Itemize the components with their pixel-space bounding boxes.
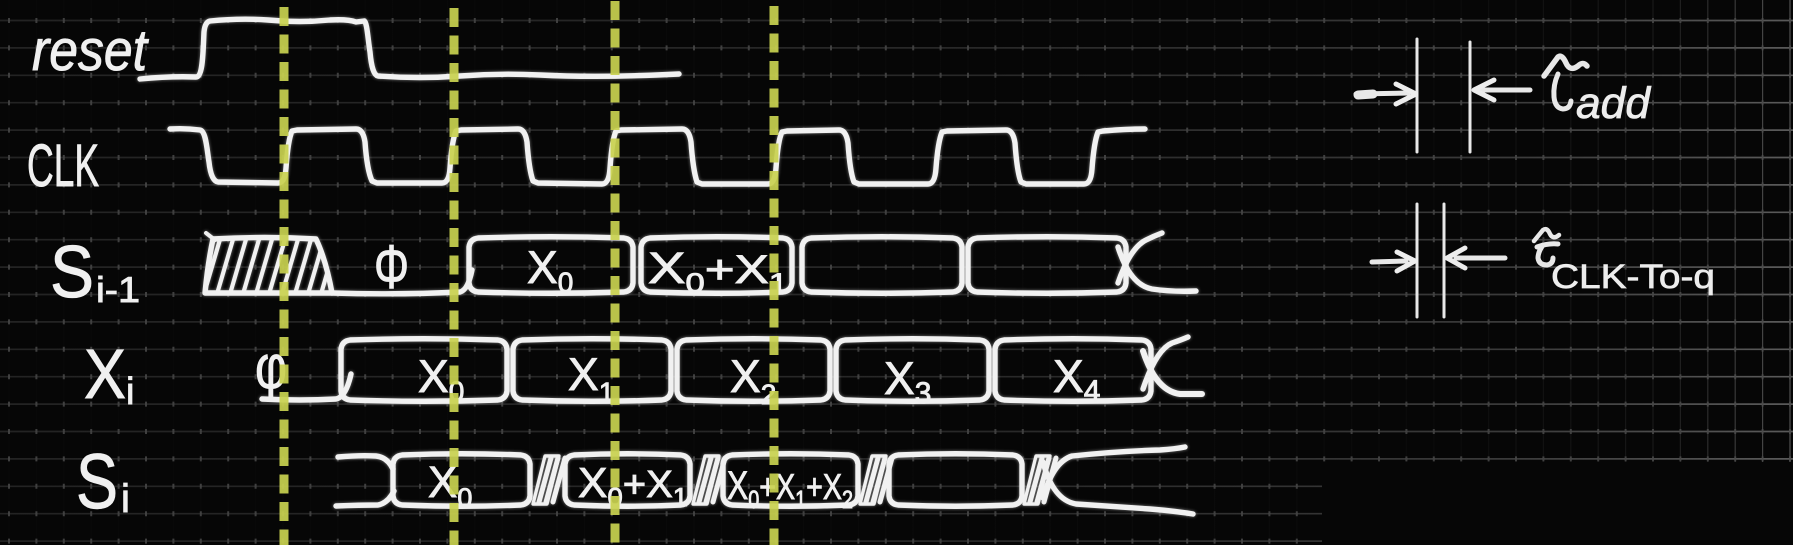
svg-text:i-1: i-1 — [96, 269, 140, 310]
svg-text:X0+X1+X2: X0+X1+X2 — [727, 464, 853, 514]
svg-text:Φ: Φ — [374, 233, 409, 302]
svg-text:add: add — [1576, 79, 1652, 128]
svg-text:S: S — [50, 230, 94, 313]
svg-text:reset: reset — [32, 18, 150, 83]
svg-text:i: i — [126, 371, 134, 413]
svg-text:X: X — [84, 335, 126, 413]
svg-text:CLK-To-q: CLK-To-q — [1551, 258, 1715, 296]
svg-text:X0+X1: X0+X1 — [648, 244, 788, 298]
svg-text:i: i — [121, 477, 130, 521]
svg-text:X0+X1: X0+X1 — [578, 459, 688, 512]
svg-text:S: S — [76, 437, 118, 525]
svg-text:CLK: CLK — [27, 132, 99, 199]
